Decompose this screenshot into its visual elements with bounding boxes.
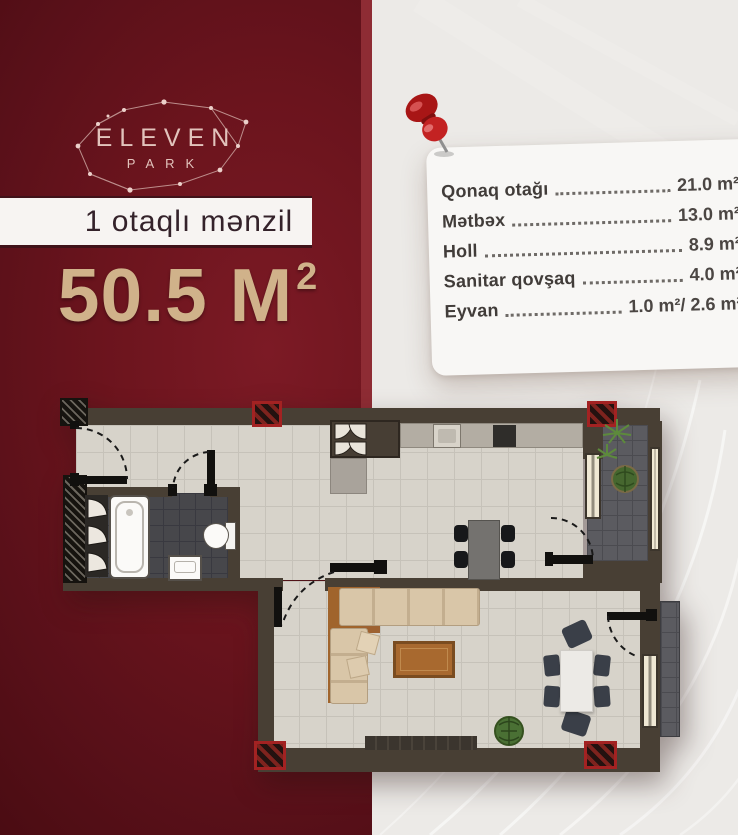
column-red-bottom-right (584, 741, 617, 769)
column-red-top-right (587, 401, 617, 427)
dining-table (560, 650, 593, 712)
room-row-balcony: Eyvan 1.0 m²/ 2.6 m² (444, 293, 738, 322)
room-row-bathroom: Sanitar qovşaq 4.0 m² (443, 263, 738, 292)
wall-hatched-left (63, 475, 87, 583)
cabinet (330, 458, 367, 494)
wall-living-left (258, 581, 274, 751)
kitchen-chair (454, 525, 468, 542)
kitchen-chair (501, 525, 515, 542)
brand-name-top: ELEVEN (68, 124, 264, 153)
room-area-value: 1.0 m²/ 2.6 m² (628, 293, 738, 317)
room-area-value: 4.0 m² (689, 263, 738, 285)
red-pushpin-icon (398, 88, 472, 168)
kitchen-chair (501, 551, 515, 568)
column-hatched-top-left (60, 398, 88, 426)
dining-chair (543, 685, 560, 707)
living-balcony-floor (660, 601, 680, 737)
total-area: 50.5 M2 (38, 252, 338, 338)
dining-chair (543, 654, 561, 677)
kitchen-sink (433, 424, 461, 448)
room-row-living: Qonaq otağı 21.0 m² (441, 173, 738, 202)
room-label: Eyvan (444, 300, 499, 323)
brand-name: ELEVEN PARK (68, 124, 264, 171)
room-label: Mətbəx (442, 210, 506, 233)
room-row-kitchen: Mətbəx 13.0 m² (442, 203, 738, 232)
toilet (203, 521, 236, 549)
window-kitchen-balcony (585, 453, 601, 519)
floorplan (58, 395, 680, 795)
bathtub (109, 495, 150, 579)
room-label: Sanitar qovşaq (443, 268, 575, 293)
dining-chair (593, 654, 611, 677)
column-red-bottom-left (254, 741, 286, 770)
bathroom-sink (168, 555, 202, 581)
total-area-superscript: 2 (296, 256, 318, 298)
kitchen-table (468, 520, 500, 580)
dotted-leader (555, 188, 670, 195)
column-red-top-center (252, 401, 282, 427)
room-area-value: 13.0 m² (678, 203, 738, 226)
kitchen-counter (400, 423, 583, 448)
room-label: Qonaq otağı (441, 179, 549, 203)
coffee-table (393, 641, 455, 678)
sofa-horizontal (339, 588, 480, 626)
sofa-pillow (346, 655, 370, 679)
dotted-leader (485, 248, 682, 258)
apartment-type-banner: 1 otaqlı mənzil (0, 196, 312, 248)
kitchen-chair (454, 551, 468, 568)
window-living-right (642, 654, 658, 728)
stove (493, 425, 516, 447)
room-area-card: Qonaq otağı 21.0 m² Mətbəx 13.0 m² Holl … (426, 139, 738, 376)
bathroom-shelf-unit (85, 495, 108, 577)
room-label: Holl (443, 241, 478, 263)
room-area-value: 21.0 m² (677, 173, 738, 196)
total-area-value: 50.5 M (58, 253, 293, 337)
flyer-root: { "brand": { "name_top": "ELEVEN", "name… (0, 0, 738, 835)
room-area-value: 8.9 m² (688, 233, 738, 255)
room-row-hall: Holl 8.9 m² (443, 233, 738, 262)
dotted-leader (512, 218, 671, 226)
brand-name-bottom: PARK (68, 156, 264, 171)
wardrobe (330, 420, 400, 458)
dotted-leader (506, 310, 622, 317)
dotted-leader (583, 278, 683, 285)
dining-chair (593, 685, 610, 707)
window-balcony-outer (650, 447, 660, 551)
brand-logo: ELEVEN PARK (68, 94, 264, 198)
tv-console (365, 736, 477, 750)
